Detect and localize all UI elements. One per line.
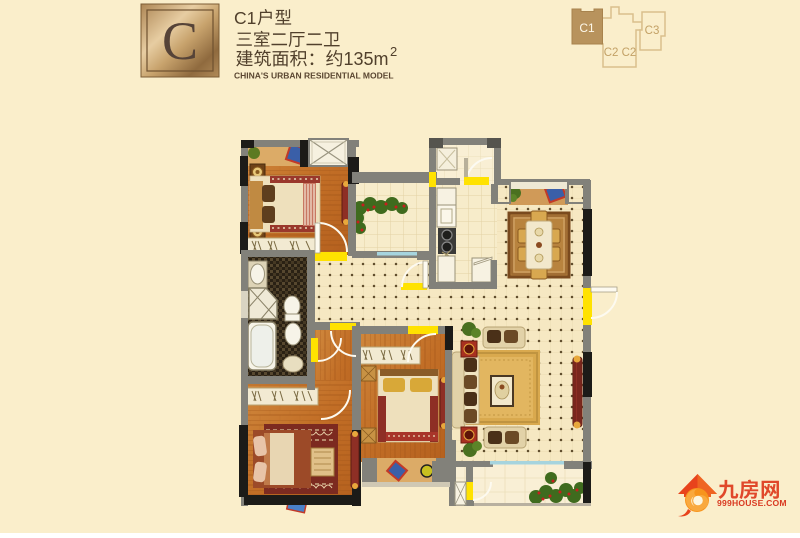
svg-text:C2 C2: C2 C2 bbox=[604, 47, 637, 59]
svg-text:135m: 135m bbox=[344, 49, 389, 69]
svg-text:C3: C3 bbox=[645, 25, 660, 37]
svg-text:C: C bbox=[162, 11, 198, 71]
svg-text:2: 2 bbox=[390, 44, 397, 59]
svg-text:999HOUSE.COM: 999HOUSE.COM bbox=[717, 498, 787, 508]
svg-text:C1: C1 bbox=[234, 8, 256, 28]
svg-text:CHINA'S URBAN RESIDENTIAL MODE: CHINA'S URBAN RESIDENTIAL MODEL bbox=[234, 71, 394, 81]
svg-text:C1: C1 bbox=[579, 21, 595, 35]
